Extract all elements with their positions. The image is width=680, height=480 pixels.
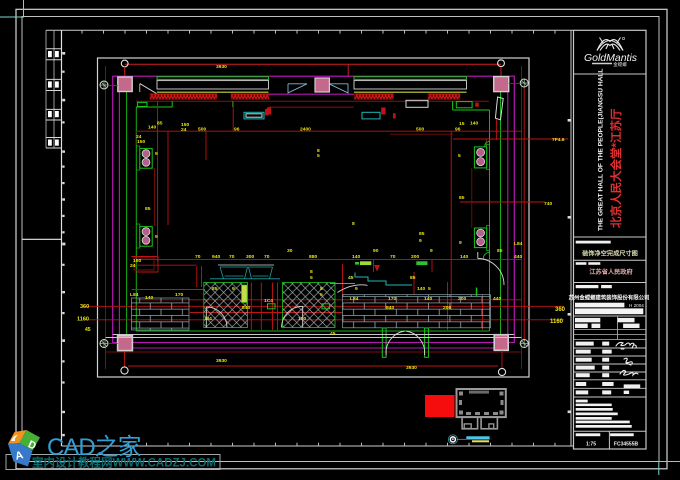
- svg-text:170: 170: [175, 292, 183, 298]
- svg-text:CAD之家: CAD之家: [47, 434, 142, 461]
- svg-text:85: 85: [157, 121, 163, 127]
- svg-text:200: 200: [411, 254, 419, 260]
- svg-text:440: 440: [493, 296, 501, 302]
- svg-text:L84: L84: [514, 241, 523, 247]
- svg-text:85: 85: [419, 231, 425, 237]
- svg-text:M4: M4: [205, 316, 212, 322]
- svg-text:100: 100: [298, 316, 306, 322]
- svg-text:740: 740: [544, 201, 552, 207]
- svg-text:840: 840: [386, 305, 394, 311]
- svg-text:840: 840: [242, 305, 250, 311]
- svg-text:140: 140: [470, 121, 478, 127]
- svg-text:7F4.6: 7F4.6: [552, 137, 565, 143]
- svg-text:85: 85: [145, 206, 151, 212]
- svg-text:140: 140: [352, 254, 360, 260]
- svg-text:9: 9: [155, 234, 158, 240]
- svg-text:H 2004: H 2004: [629, 303, 644, 308]
- svg-text:1C4: 1C4: [264, 298, 273, 304]
- svg-text:140: 140: [417, 286, 425, 292]
- svg-text:96: 96: [455, 127, 461, 133]
- svg-text:200: 200: [458, 296, 466, 302]
- svg-text:3930: 3930: [406, 365, 417, 371]
- svg-text:3930: 3930: [216, 358, 227, 364]
- svg-text:360: 360: [80, 304, 89, 310]
- svg-text:96: 96: [234, 127, 240, 133]
- svg-text:24: 24: [181, 127, 187, 133]
- svg-text:5: 5: [310, 275, 313, 281]
- svg-text:500: 500: [416, 127, 424, 133]
- svg-text:940: 940: [212, 254, 220, 260]
- svg-text:150: 150: [137, 139, 145, 145]
- svg-text:45: 45: [330, 331, 336, 337]
- svg-text:140: 140: [145, 295, 153, 301]
- svg-text:30: 30: [287, 248, 293, 254]
- svg-text:北京人民大会堂*江苏厅: 北京人民大会堂*江苏厅: [609, 108, 623, 228]
- svg-text:1:75: 1:75: [586, 442, 596, 448]
- svg-text:9: 9: [155, 151, 158, 157]
- svg-text:5: 5: [317, 153, 320, 159]
- svg-text:5: 5: [428, 286, 431, 292]
- svg-text:70: 70: [264, 254, 270, 260]
- svg-text:9: 9: [355, 286, 358, 292]
- svg-text:200: 200: [443, 305, 451, 311]
- svg-text:1160: 1160: [77, 317, 89, 323]
- svg-text:70: 70: [229, 254, 235, 260]
- svg-text:90: 90: [373, 248, 379, 254]
- svg-text:9: 9: [232, 286, 235, 292]
- svg-text:9: 9: [430, 248, 433, 254]
- svg-text:1160: 1160: [550, 319, 564, 325]
- svg-text:45: 45: [348, 275, 354, 281]
- svg-text:45: 45: [85, 327, 91, 333]
- svg-text:170: 170: [388, 296, 396, 302]
- svg-text:3930: 3930: [216, 64, 227, 70]
- svg-text:苏州金螳螂建筑装饰股份有限公司: 苏州金螳螂建筑装饰股份有限公司: [569, 294, 650, 302]
- svg-text:70: 70: [390, 254, 396, 260]
- svg-text:360: 360: [555, 307, 566, 313]
- svg-text:15: 15: [459, 121, 465, 127]
- svg-text:8: 8: [352, 221, 355, 227]
- svg-text:70: 70: [195, 254, 201, 260]
- svg-text:9: 9: [419, 238, 422, 244]
- svg-text:9: 9: [459, 240, 462, 246]
- svg-text:85: 85: [497, 248, 503, 254]
- svg-text:140: 140: [148, 125, 156, 131]
- svg-text:L84: L84: [130, 292, 139, 298]
- svg-text:85: 85: [212, 286, 218, 292]
- svg-text:L84: L84: [350, 296, 359, 302]
- svg-text:85: 85: [459, 195, 465, 201]
- svg-text:8: 8: [310, 269, 313, 275]
- svg-text:5: 5: [458, 153, 461, 159]
- svg-text:85: 85: [410, 275, 416, 281]
- svg-text:2400: 2400: [300, 127, 311, 133]
- svg-text:440: 440: [514, 254, 522, 260]
- svg-text:500: 500: [198, 127, 206, 133]
- svg-text:150: 150: [133, 258, 141, 264]
- svg-text:5: 5: [320, 292, 323, 298]
- svg-text:江苏省人民政府: 江苏省人民政府: [589, 268, 633, 276]
- svg-text:THE GREAT HALL OF THE PEOPLE(J: THE GREAT HALL OF THE PEOPLE(JIANGSU HAL…: [598, 69, 605, 231]
- svg-text:GoldMantis: GoldMantis: [584, 52, 638, 64]
- svg-text:装饰净空完成尺寸图: 装饰净空完成尺寸图: [581, 250, 638, 258]
- svg-text:140: 140: [460, 254, 468, 260]
- svg-text:FC34555B: FC34555B: [614, 442, 639, 448]
- svg-text:880: 880: [309, 254, 317, 260]
- svg-text:140: 140: [424, 296, 432, 302]
- svg-text:8: 8: [320, 286, 323, 292]
- svg-text:金螳螂: 金螳螂: [613, 61, 627, 68]
- svg-text:300: 300: [246, 254, 254, 260]
